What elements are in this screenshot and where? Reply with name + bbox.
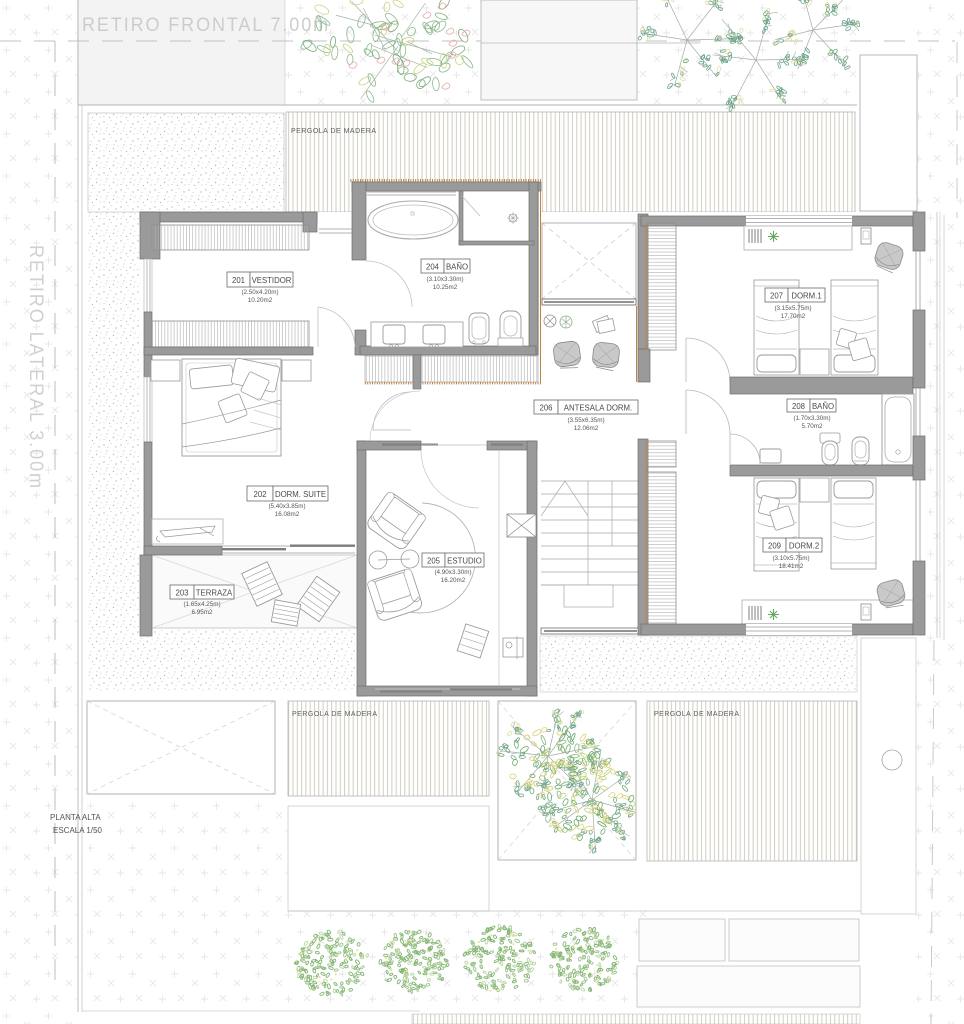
svg-text:PERGOLA DE MADERA: PERGOLA DE MADERA — [291, 128, 377, 135]
svg-text:(4.90x3.30m): (4.90x3.30m) — [434, 569, 471, 576]
svg-text:6.95m2: 6.95m2 — [191, 609, 213, 616]
svg-text:201: 201 — [232, 276, 245, 285]
svg-text:TERRAZA: TERRAZA — [196, 589, 233, 598]
svg-text:RETIRO FRONTAL 7.00m: RETIRO FRONTAL 7.00m — [82, 15, 330, 36]
svg-text:(3.10x5.75m): (3.10x5.75m) — [772, 555, 809, 562]
svg-text:PLANTA ALTA: PLANTA ALTA — [50, 813, 101, 822]
svg-text:RETIRO LATERAL 3.00m: RETIRO LATERAL 3.00m — [25, 245, 46, 490]
svg-text:VESTIDOR: VESTIDOR — [252, 276, 292, 285]
svg-text:(3.15x5.75m): (3.15x5.75m) — [774, 305, 811, 312]
svg-text:10.20m2: 10.20m2 — [248, 297, 273, 304]
svg-text:ESTUDIO: ESTUDIO — [447, 557, 482, 566]
svg-text:17.70m2: 17.70m2 — [781, 313, 806, 320]
svg-text:202: 202 — [253, 490, 266, 499]
svg-text:5.70m2: 5.70m2 — [801, 423, 823, 430]
svg-text:207: 207 — [770, 292, 783, 301]
svg-text:204: 204 — [426, 263, 440, 272]
svg-text:(3.10x3.30m): (3.10x3.30m) — [426, 276, 463, 283]
svg-text:(2.50x4.20m): (2.50x4.20m) — [241, 289, 278, 296]
svg-text:ANTESALA DORM.: ANTESALA DORM. — [564, 404, 632, 413]
svg-text:PERGOLA DE MADERA: PERGOLA DE MADERA — [292, 711, 378, 718]
svg-text:DORM.1: DORM.1 — [791, 292, 821, 301]
svg-text:BAÑO: BAÑO — [812, 402, 834, 411]
svg-text:DORM. SUITE: DORM. SUITE — [275, 490, 326, 499]
svg-text:(3.55x6.35m): (3.55x6.35m) — [567, 417, 604, 424]
svg-text:PERGOLA DE MADERA: PERGOLA DE MADERA — [654, 711, 740, 718]
svg-text:BAÑO: BAÑO — [446, 263, 468, 272]
svg-text:205: 205 — [427, 557, 441, 566]
svg-text:208: 208 — [792, 402, 805, 411]
svg-text:ESCALA 1/50: ESCALA 1/50 — [53, 826, 102, 835]
svg-text:206: 206 — [539, 404, 552, 413]
svg-text:209: 209 — [768, 542, 781, 551]
svg-text:DORM.2: DORM.2 — [789, 542, 819, 551]
svg-text:12.06m2: 12.06m2 — [574, 425, 599, 432]
svg-text:(1.70x3.30m): (1.70x3.30m) — [793, 415, 830, 422]
svg-text:18.41m2: 18.41m2 — [779, 563, 804, 570]
svg-text:(5.40x3.85m): (5.40x3.85m) — [268, 503, 305, 510]
svg-text:203: 203 — [175, 589, 188, 598]
svg-text:16.08m2: 16.08m2 — [275, 511, 300, 518]
svg-text:10.25m2: 10.25m2 — [433, 284, 458, 291]
svg-text:16.20m2: 16.20m2 — [441, 577, 466, 584]
svg-text:(1.65x4.25m): (1.65x4.25m) — [183, 601, 220, 608]
